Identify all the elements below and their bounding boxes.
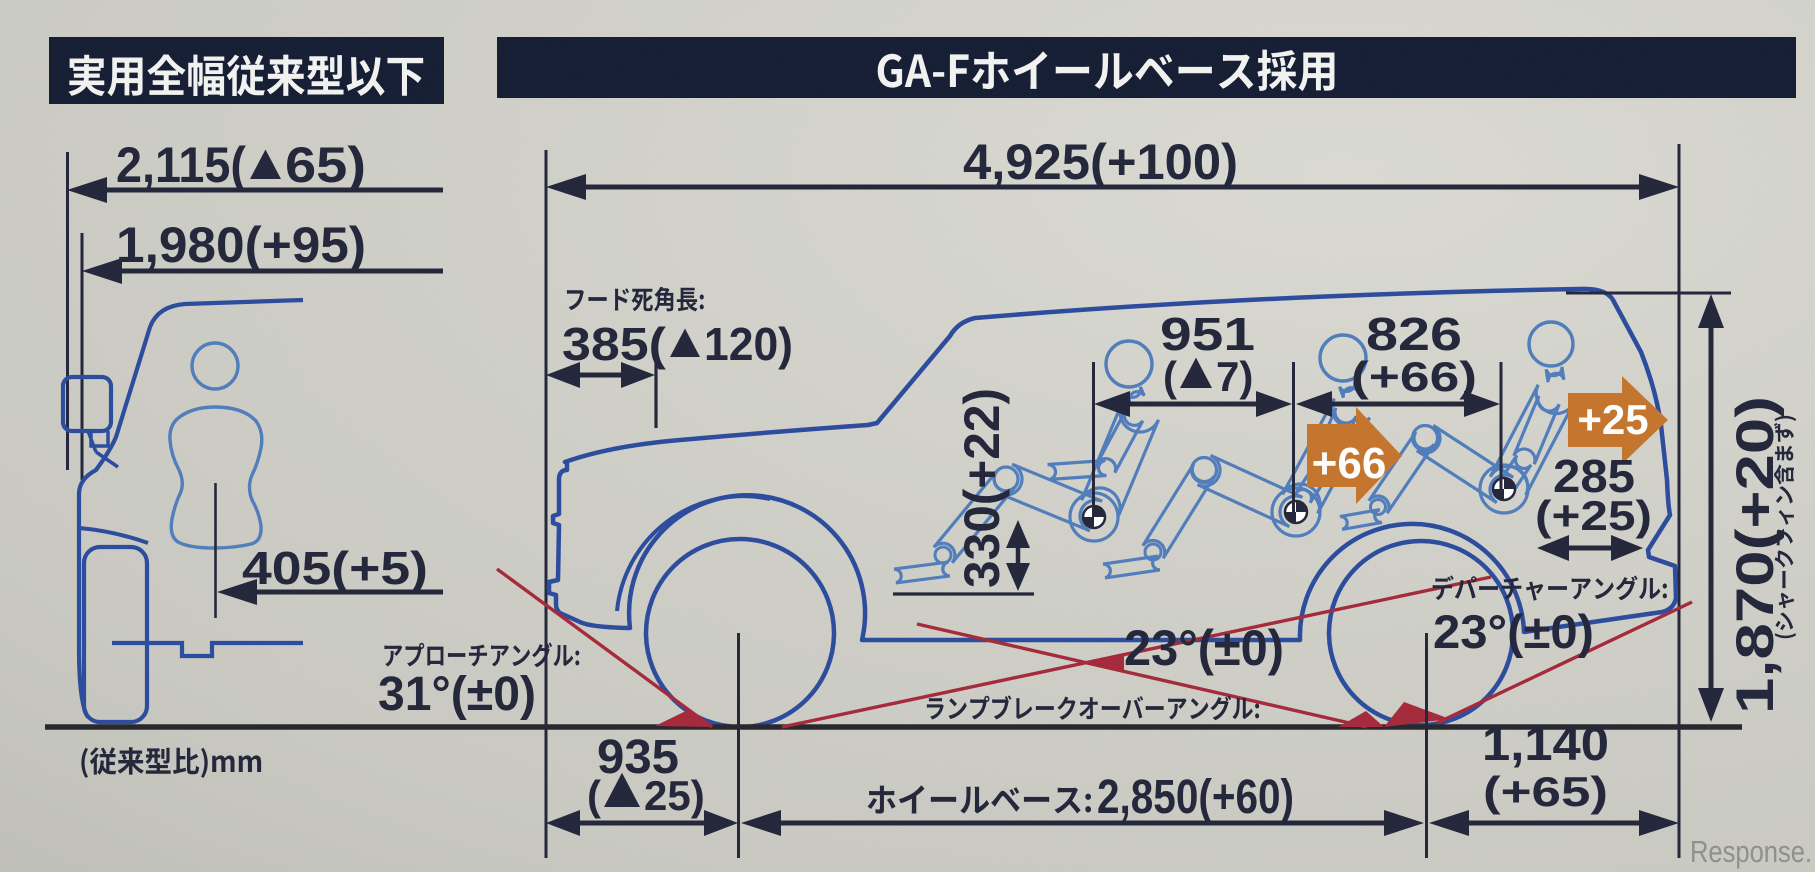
svg-text:4,925(+100): 4,925(+100) <box>963 134 1238 190</box>
svg-text:(: ( <box>587 772 601 819</box>
svg-text:405(+5): 405(+5) <box>242 542 428 594</box>
svg-text:+66: +66 <box>1312 439 1387 488</box>
svg-text:25): 25) <box>644 772 705 819</box>
svg-text:23°(±0): 23°(±0) <box>1433 605 1594 658</box>
svg-text:1,870(+20): 1,870(+20) <box>1726 396 1785 714</box>
svg-text:65): 65) <box>285 137 366 193</box>
svg-text:7): 7) <box>1216 353 1253 400</box>
svg-text:Response.: Response. <box>1690 834 1812 869</box>
svg-text:(+65): (+65) <box>1483 768 1608 815</box>
svg-text:(+66): (+66) <box>1351 353 1477 400</box>
svg-text:120): 120) <box>704 318 793 370</box>
svg-text:23°(±0): 23°(±0) <box>1124 620 1284 676</box>
svg-text:1,980(+95): 1,980(+95) <box>116 217 366 273</box>
svg-text:330(+22): 330(+22) <box>954 388 1010 588</box>
svg-text:2,850(+60): 2,850(+60) <box>1097 771 1294 824</box>
svg-text:31°(±0): 31°(±0) <box>378 668 536 721</box>
svg-text:+25: +25 <box>1577 396 1648 443</box>
svg-text:1,140: 1,140 <box>1482 718 1609 771</box>
svg-text:(+25): (+25) <box>1535 492 1652 539</box>
svg-text:2,115(: 2,115( <box>116 137 246 193</box>
svg-text:385(: 385( <box>562 318 667 370</box>
svg-text:(: ( <box>1163 353 1177 400</box>
